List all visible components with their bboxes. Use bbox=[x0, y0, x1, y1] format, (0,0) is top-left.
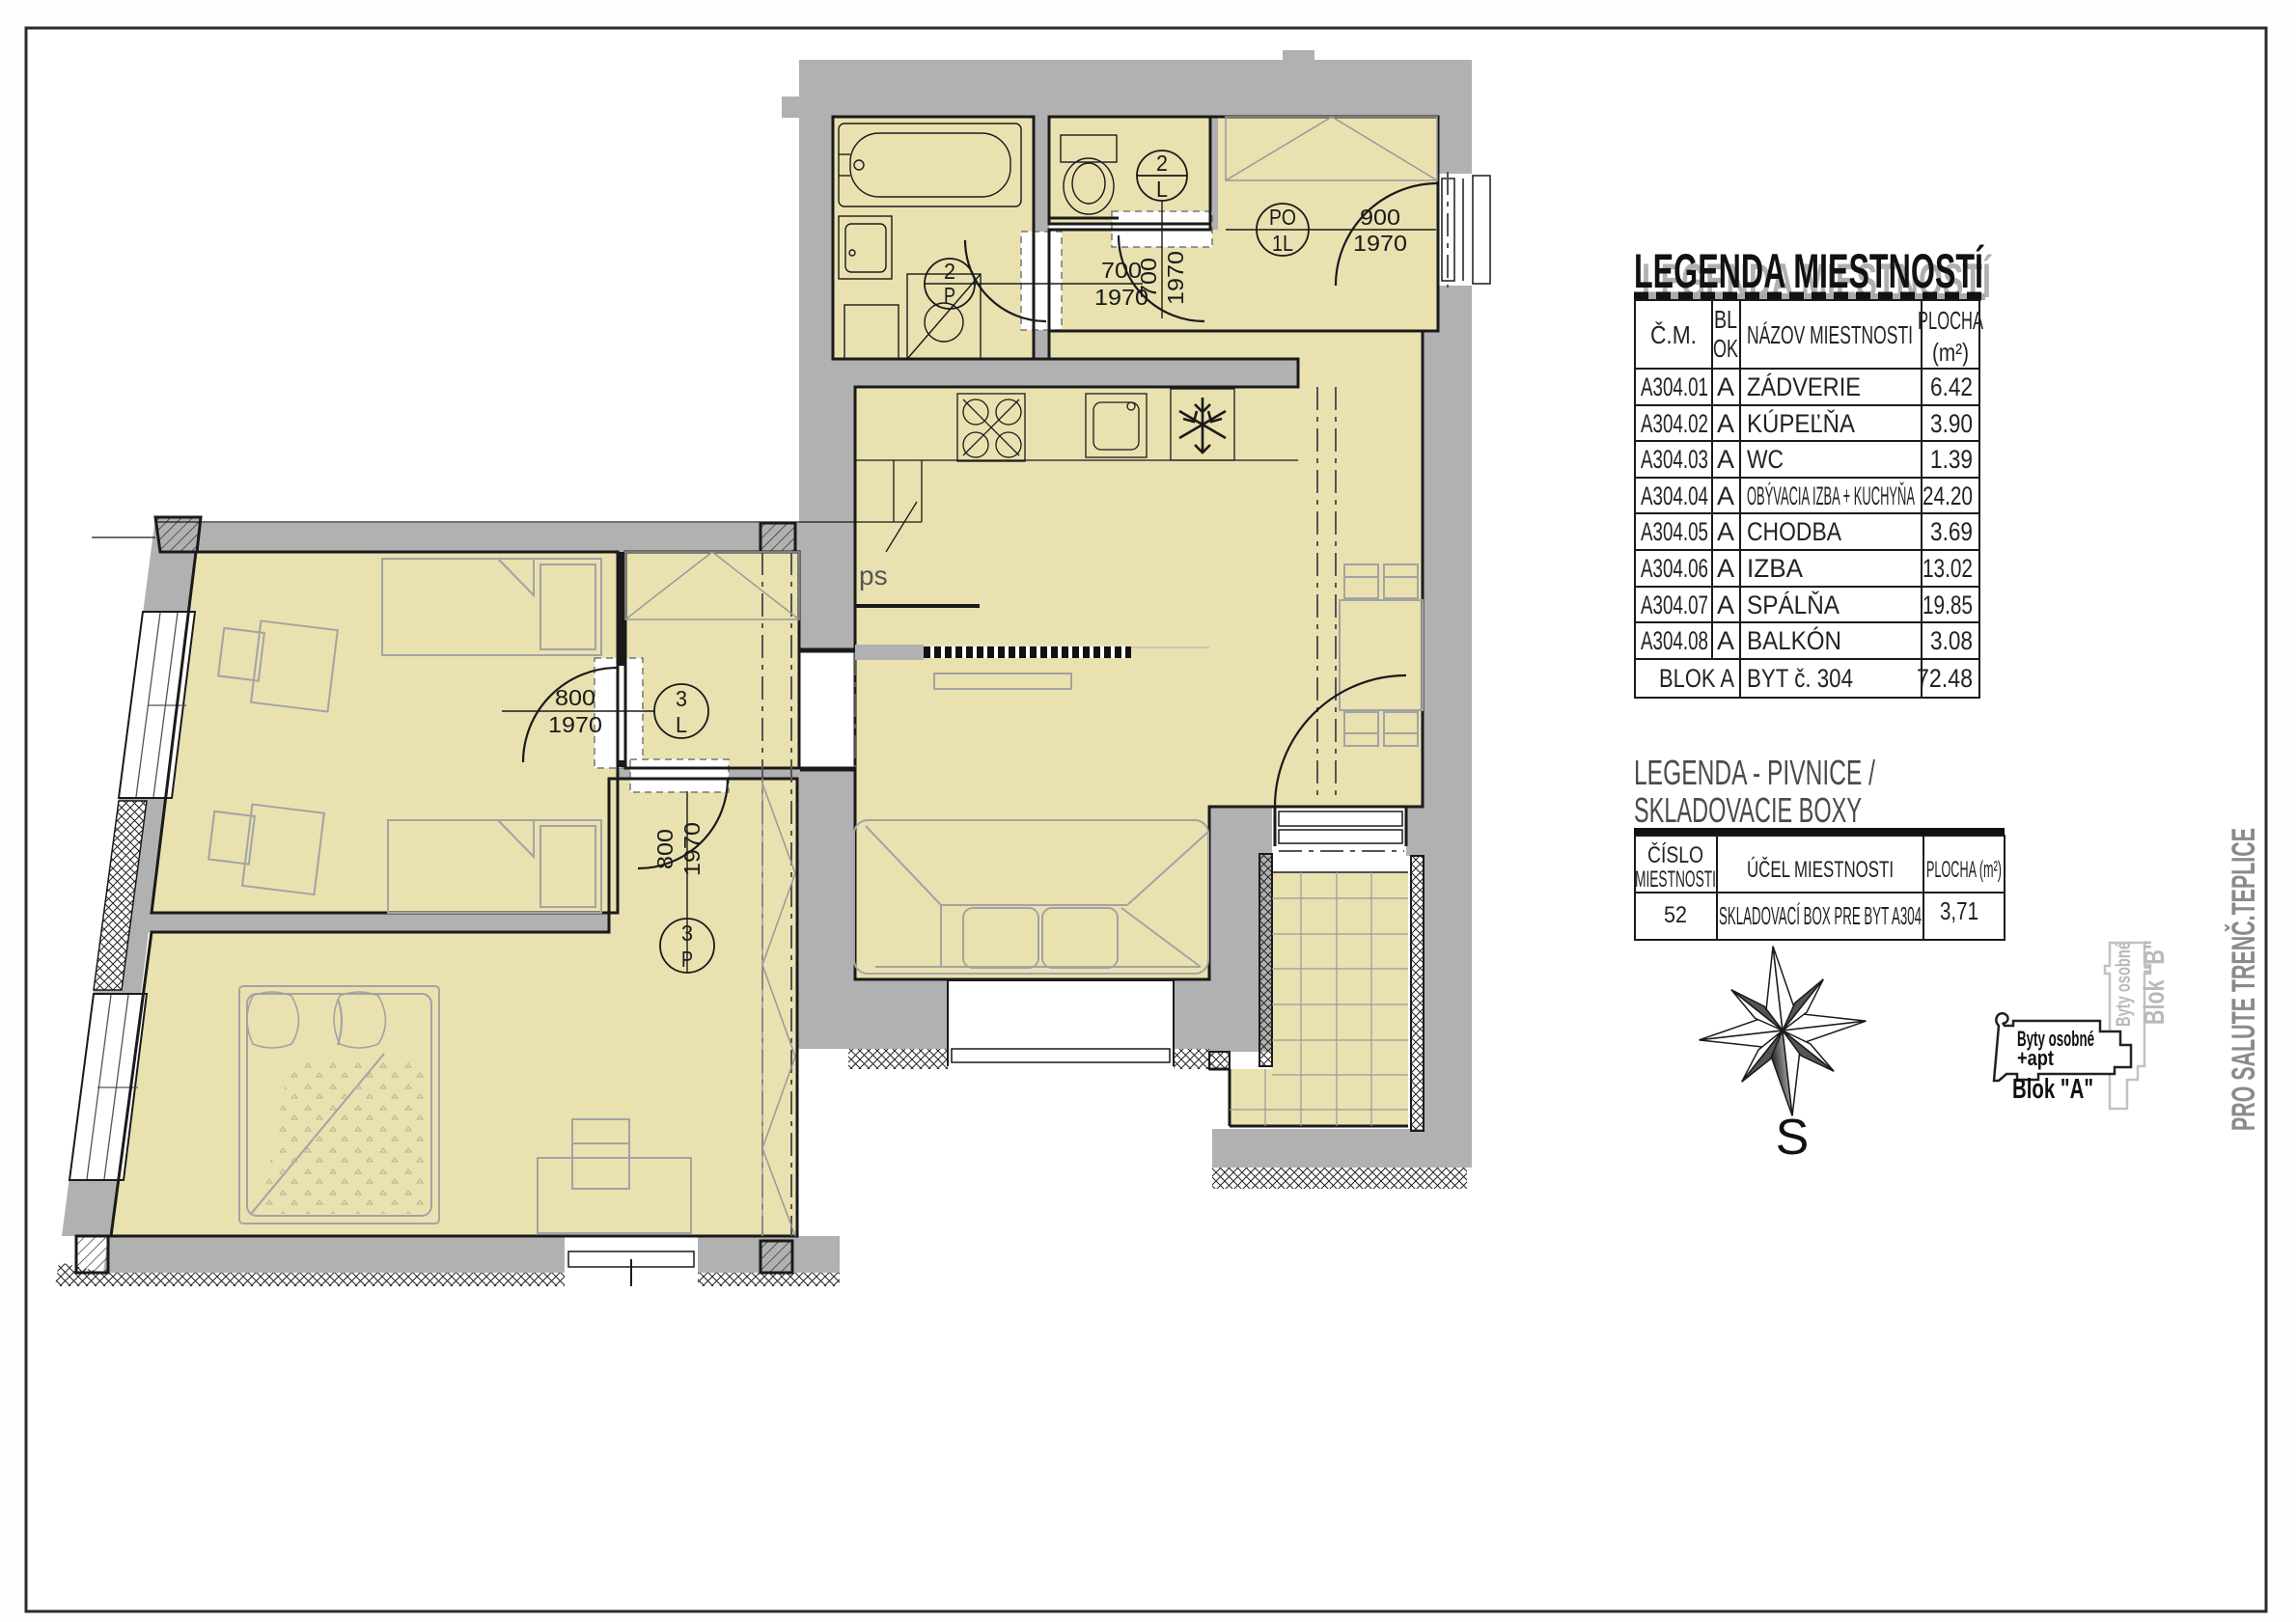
svg-text:MIESTNOSTI: MIESTNOSTI bbox=[1635, 866, 1716, 893]
svg-text:OBÝVACIA IZBA + KUCHYŇA: OBÝVACIA IZBA + KUCHYŇA bbox=[1747, 481, 1915, 510]
svg-text:700: 700 bbox=[1136, 258, 1161, 298]
svg-text:PLOCHA: PLOCHA bbox=[1918, 306, 1983, 335]
svg-text:KÚPEĽŇA: KÚPEĽŇA bbox=[1747, 408, 1855, 438]
svg-text:A: A bbox=[1717, 481, 1734, 510]
svg-text:ČÍSLO: ČÍSLO bbox=[1647, 841, 1703, 868]
svg-text:A304.07: A304.07 bbox=[1641, 591, 1708, 619]
svg-text:13.02: 13.02 bbox=[1923, 554, 1973, 583]
svg-text:BL: BL bbox=[1714, 305, 1737, 334]
svg-text:2: 2 bbox=[1156, 151, 1168, 176]
svg-text:A: A bbox=[1717, 445, 1734, 474]
svg-text:CHODBA: CHODBA bbox=[1747, 517, 1841, 546]
svg-text:BLOK A: BLOK A bbox=[1659, 664, 1734, 693]
svg-text:A304.06: A304.06 bbox=[1641, 554, 1708, 583]
svg-text:3.08: 3.08 bbox=[1930, 626, 1973, 655]
svg-text:72.48: 72.48 bbox=[1917, 664, 1973, 693]
svg-text:WC: WC bbox=[1747, 445, 1784, 474]
svg-text:3,71: 3,71 bbox=[1940, 896, 1978, 925]
svg-text:3.90: 3.90 bbox=[1930, 409, 1973, 438]
svg-text:PO: PO bbox=[1269, 205, 1296, 230]
svg-text:19.85: 19.85 bbox=[1923, 591, 1973, 619]
svg-text:Byty osobné: Byty osobné bbox=[2113, 942, 2135, 1027]
svg-text:A304.05: A304.05 bbox=[1641, 517, 1708, 546]
svg-text:L: L bbox=[676, 712, 687, 737]
svg-text:A304.08: A304.08 bbox=[1641, 626, 1708, 655]
svg-text:P: P bbox=[681, 947, 693, 972]
svg-text:PLOCHA (m²): PLOCHA (m²) bbox=[1926, 857, 2002, 883]
svg-text:NÁZOV MIESTNOSTI: NÁZOV MIESTNOSTI bbox=[1747, 320, 1913, 349]
svg-text:1970: 1970 bbox=[679, 822, 705, 876]
svg-text:2: 2 bbox=[944, 259, 955, 284]
svg-text:IZBA: IZBA bbox=[1747, 554, 1803, 583]
svg-text:1970: 1970 bbox=[1353, 231, 1407, 256]
svg-text:P: P bbox=[944, 283, 955, 308]
svg-text:S: S bbox=[1776, 1110, 1810, 1166]
svg-text:L: L bbox=[1156, 177, 1168, 202]
svg-text:24.20: 24.20 bbox=[1923, 481, 1973, 510]
svg-text:1L: 1L bbox=[1272, 231, 1293, 256]
svg-text:6.42: 6.42 bbox=[1930, 372, 1973, 401]
svg-text:OK: OK bbox=[1713, 334, 1738, 363]
svg-text:52: 52 bbox=[1664, 902, 1687, 928]
svg-text:BALKÓN: BALKÓN bbox=[1747, 625, 1841, 655]
svg-text:800: 800 bbox=[555, 685, 595, 710]
svg-text:A: A bbox=[1717, 626, 1734, 655]
svg-text:SKLADOVACIE BOXY: SKLADOVACIE BOXY bbox=[1634, 790, 1862, 830]
svg-text:SKLADOVACÍ BOX PRE BYT A304: SKLADOVACÍ BOX PRE BYT A304 bbox=[1719, 901, 1922, 930]
svg-text:1970: 1970 bbox=[548, 712, 602, 737]
svg-text:ZÁDVERIE: ZÁDVERIE bbox=[1747, 372, 1861, 401]
svg-text:1970: 1970 bbox=[1163, 251, 1188, 305]
svg-text:A: A bbox=[1717, 554, 1734, 583]
svg-text:A: A bbox=[1717, 372, 1734, 401]
svg-text:Blok "A": Blok "A" bbox=[2012, 1074, 2093, 1105]
svg-text:3: 3 bbox=[676, 686, 687, 711]
svg-text:Blok "B": Blok "B" bbox=[2139, 940, 2171, 1025]
svg-text:ÚČEL MIESTNOSTI: ÚČEL MIESTNOSTI bbox=[1747, 856, 1894, 883]
svg-text:1.39: 1.39 bbox=[1930, 445, 1973, 474]
svg-text:A304.02: A304.02 bbox=[1641, 409, 1708, 438]
svg-text:SPÁLŇA: SPÁLŇA bbox=[1747, 590, 1840, 619]
svg-text:A304.04: A304.04 bbox=[1641, 481, 1708, 510]
svg-text:(m²): (m²) bbox=[1932, 338, 1969, 367]
svg-text:3: 3 bbox=[681, 921, 693, 946]
svg-text:3.69: 3.69 bbox=[1930, 517, 1973, 546]
svg-text:A304.01: A304.01 bbox=[1641, 372, 1708, 401]
svg-text:ps: ps bbox=[859, 561, 888, 591]
svg-text:LEGENDA - PIVNICE /: LEGENDA - PIVNICE / bbox=[1634, 753, 1875, 792]
svg-text:900: 900 bbox=[1360, 205, 1400, 230]
svg-text:+apt: +apt bbox=[2017, 1046, 2055, 1070]
svg-text:LEGENDA MIESTNOSTÍ: LEGENDA MIESTNOSTÍ bbox=[1634, 244, 1984, 298]
svg-text:PRO SALUTE TRENČ.TEPLICE: PRO SALUTE TRENČ.TEPLICE bbox=[2225, 828, 2262, 1131]
svg-text:A: A bbox=[1717, 591, 1734, 619]
svg-text:A: A bbox=[1717, 517, 1734, 546]
svg-text:A304.03: A304.03 bbox=[1641, 445, 1708, 474]
svg-text:BYT č. 304: BYT č. 304 bbox=[1747, 664, 1853, 693]
svg-text:Č.M.: Č.M. bbox=[1650, 320, 1697, 349]
svg-text:800: 800 bbox=[652, 829, 678, 869]
svg-text:A: A bbox=[1717, 409, 1734, 438]
